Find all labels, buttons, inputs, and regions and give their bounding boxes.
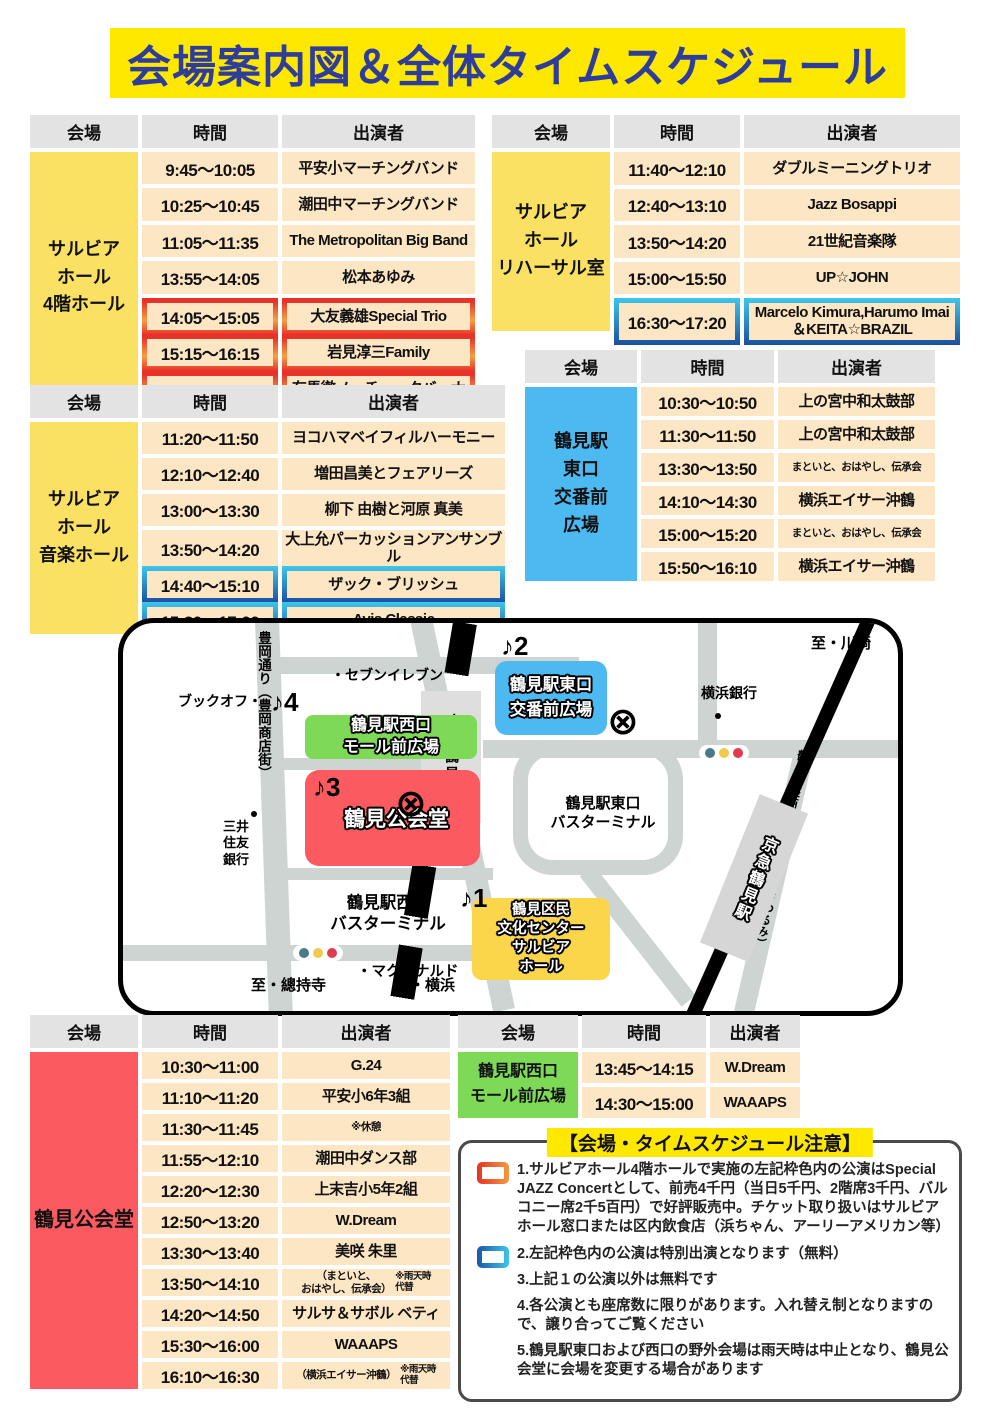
- crossing-icon-east: ⊗: [607, 703, 639, 741]
- table-row: 14:30～15:00 WAAAPS: [582, 1087, 800, 1118]
- table-row: 11:05～11:35 The Metropolitan Big Band: [142, 225, 475, 257]
- page-title: 会場案内図＆全体タイムスケジュール: [127, 31, 888, 95]
- col-header-venue: 会場: [30, 1015, 138, 1048]
- performer-cell: 平安小6年3組: [282, 1083, 450, 1110]
- table-rows: 10:30～11:00 G.24 11:10～11:20 平安小6年3組 11:…: [142, 1052, 450, 1389]
- table-row: 11:20～11:50 ヨコハマベイフィルハーモニー: [142, 422, 505, 454]
- time-cell: 11:30～11:45: [142, 1114, 278, 1141]
- table-row: 11:55～12:10 潮田中ダンス部: [142, 1145, 450, 1172]
- venue-map: 鶴見銀座商店街（ベルロードつるみ） ＪＲ鶴見駅 京急鶴見駅 豊岡通り（豊岡商店街…: [118, 618, 903, 1016]
- performer-cell: （まといと、 おはやし、伝承会）※雨天時 代替: [282, 1269, 450, 1296]
- schedule-table-east-plaza: 会場 時間 出演者 鶴見駅 東口 交番前 広場 10:30～10:50 上の宮中…: [525, 350, 935, 581]
- col-header-time: 時間: [142, 1015, 278, 1048]
- venue-name: 鶴見駅西口 モール前広場: [458, 1052, 578, 1118]
- performer-cell: まといと、おはやし、伝承会: [778, 519, 935, 548]
- time-cell: 13:50～14:20: [142, 530, 278, 567]
- col-header-performer: 出演者: [710, 1015, 800, 1048]
- table-row: 10:30～10:50 上の宮中和太鼓部: [641, 387, 935, 416]
- time-cell: 11:55～12:10: [142, 1145, 278, 1172]
- time-cell: 12:50～13:20: [142, 1207, 278, 1234]
- col-header-performer: 出演者: [282, 1015, 450, 1048]
- note-item: 5.鶴見駅東口および西口の野外会場は雨天時は中止となり、鶴見公会堂に会場を変更す…: [467, 1342, 949, 1380]
- color-swatch-icon: [477, 1162, 509, 1184]
- performer-cell: Jazz Bosappi: [744, 189, 960, 222]
- schedule-table-music-hall: 会場 時間 出演者 サルビア ホール 音楽ホール 11:20～11:50 ヨコハ…: [30, 385, 505, 634]
- table-row: 16:10～16:30 （横浜エイサー沖鶴）※雨天時 代替: [142, 1362, 450, 1389]
- time-cell: 10:30～10:50: [641, 387, 774, 416]
- table-row: 15:50～16:10 横浜エイサー沖鶴: [641, 552, 935, 581]
- time-cell: 14:40～15:10: [142, 566, 278, 603]
- road-right-vertical: [698, 619, 717, 745]
- table-row: 15:30～16:00 WAAAPS: [142, 1331, 450, 1358]
- table-row: 12:40～13:10 Jazz Bosappi: [614, 189, 960, 222]
- direction-sojiji: 至・總持寺: [251, 977, 326, 996]
- time-cell: 14:05～15:05: [142, 298, 278, 335]
- schedule-table-salvia-4f: 会場 時間 出演者 サルビア ホール 4階ホール 9:45～10:05 平安小マ…: [30, 115, 475, 403]
- time-cell: 13:30～13:40: [142, 1238, 278, 1265]
- table-row: 15:00～15:20 まといと、おはやし、伝承会: [641, 519, 935, 548]
- performer-cell: 美咲 朱里: [282, 1238, 450, 1265]
- col-header-time: 時間: [582, 1015, 706, 1048]
- poi-seven-eleven: ・セブンイレブン: [331, 667, 443, 685]
- time-cell: 11:05～11:35: [142, 225, 278, 257]
- time-cell: 11:40～12:10: [614, 152, 740, 185]
- table-row: 11:40～12:10 ダブルミーニングトリオ: [614, 152, 960, 185]
- road-west-2: [275, 868, 493, 880]
- col-header-time: 時間: [641, 350, 774, 383]
- west-bus-terminal-label: 鶴見駅西口 バスターミナル: [288, 893, 488, 934]
- time-cell: 16:30～17:20: [614, 298, 740, 345]
- table-row: 13:50～14:10 （まといと、 おはやし、伝承会）※雨天時 代替: [142, 1269, 450, 1296]
- table-row: 12:50～13:20 W.Dream: [142, 1207, 450, 1234]
- time-cell: 13:50～14:20: [614, 225, 740, 258]
- time-cell: 13:00～13:30: [142, 494, 278, 526]
- table-header: 会場 時間 出演者: [30, 385, 505, 418]
- table-header: 会場 時間 出演者: [30, 1015, 450, 1048]
- performer-cell: 大上允パーカッションアンサンブル: [282, 530, 505, 567]
- notes-panel: 【会場・タイムスケジュール注意】 1.サルビアホール4階ホールで実施の左記枠色内…: [458, 1140, 962, 1402]
- performer-cell: 上の宮中和太鼓部: [778, 387, 935, 416]
- performer-cell: 平安小マーチングバンド: [282, 152, 475, 184]
- performer-cell: 潮田中マーチングバンド: [282, 188, 475, 220]
- time-cell: 11:30～11:50: [641, 420, 774, 449]
- table-row: 13:55～14:05 松本あゆみ: [142, 261, 475, 293]
- poi-bank-dot: [715, 713, 721, 719]
- performer-cell: UP☆JOHN: [744, 262, 960, 295]
- table-rows: 10:30～10:50 上の宮中和太鼓部 11:30～11:50 上の宮中和太鼓…: [641, 387, 935, 581]
- performer-cell: （横浜エイサー沖鶴）※雨天時 代替: [282, 1362, 450, 1389]
- table-header: 会場 時間 出演者: [458, 1015, 800, 1048]
- note-text: 1.サルビアホール4階ホールで実施の左記枠色内の公演はSpecial JAZZ …: [517, 1161, 949, 1238]
- time-cell: 15:15～16:15: [142, 334, 278, 371]
- table-row: 12:20～12:30 上末吉小5年2組: [142, 1176, 450, 1203]
- col-header-performer: 出演者: [778, 350, 935, 383]
- note-item: 1.サルビアホール4階ホールで実施の左記枠色内の公演はSpecial JAZZ …: [467, 1161, 949, 1238]
- performer-cell: ダブルミーニングトリオ: [744, 152, 960, 185]
- time-cell: 12:10～12:40: [142, 458, 278, 490]
- performer-cell: ヨコハマベイフィルハーモニー: [282, 422, 505, 454]
- table-rows: 11:40～12:10 ダブルミーニングトリオ 12:40～13:10 Jazz…: [614, 152, 960, 331]
- time-cell: 13:55～14:05: [142, 261, 278, 293]
- east-bus-terminal-label: 鶴見駅東口 バスターミナル: [528, 795, 678, 833]
- table-row: 12:10～12:40 増田昌美とフェアリーズ: [142, 458, 505, 490]
- time-cell: 15:50～16:10: [641, 552, 774, 581]
- table-rows: 9:45～10:05 平安小マーチングバンド 10:25～10:45 潮田中マー…: [142, 152, 475, 403]
- performer-cell: 横浜エイサー沖鶴: [778, 552, 935, 581]
- marker-2-icon: ♪2: [501, 631, 528, 662]
- table-row: 16:30～17:20 Marcelo Kimura,Harumo Imai ＆…: [614, 298, 960, 331]
- col-header-venue: 会場: [525, 350, 637, 383]
- performer-cell: 大友義雄Special Trio: [282, 298, 475, 335]
- performer-cell: 柳下 由樹と河原 真美: [282, 494, 505, 526]
- performer-cell: サルサ＆サボル ベティ: [282, 1300, 450, 1327]
- table-rows: 11:20～11:50 ヨコハマベイフィルハーモニー 12:10～12:40 増…: [142, 422, 505, 634]
- performer-cell: 上末吉小5年2組: [282, 1176, 450, 1203]
- note-item: 2.左記枠色内の公演は特別出演となります（無料）: [467, 1245, 949, 1264]
- performer-cell: ザック・ブリッシュ: [282, 566, 505, 603]
- note-item: 4.各公演とも座席数に限りがあります。入れ替え制となりますので、譲り合ってご覧く…: [467, 1297, 949, 1335]
- table-row: 14:05～15:05 大友義雄Special Trio: [142, 298, 475, 330]
- col-header-venue: 会場: [458, 1015, 578, 1048]
- time-cell: 9:45～10:05: [142, 152, 278, 184]
- performer-cell: G.24: [282, 1052, 450, 1079]
- col-header-performer: 出演者: [282, 385, 505, 418]
- time-cell: 10:25～10:45: [142, 188, 278, 220]
- performer-cell: WAAAPS: [282, 1331, 450, 1358]
- table-header: 会場 時間 出演者: [492, 115, 960, 148]
- col-header-time: 時間: [142, 115, 278, 148]
- time-cell: 16:10～16:30: [142, 1362, 278, 1389]
- table-header: 会場 時間 出演者: [30, 115, 475, 148]
- color-swatch-icon: [477, 1246, 509, 1268]
- schedule-table-public-hall: 会場 時間 出演者 鶴見公会堂 10:30～11:00 G.24 11:10～1…: [30, 1015, 450, 1389]
- performer-cell: 増田昌美とフェアリーズ: [282, 458, 505, 490]
- map-venue-west-mall: 鶴見駅西口 モール前広場: [305, 715, 477, 759]
- table-row: 10:25～10:45 潮田中マーチングバンド: [142, 188, 475, 220]
- table-row: 13:50～14:20 大上允パーカッションアンサンブル: [142, 530, 505, 562]
- performer-cell: 岩見淳三Family: [282, 334, 475, 371]
- performer-cell: まといと、おはやし、伝承会: [778, 453, 935, 482]
- time-cell: 11:10～11:20: [142, 1083, 278, 1110]
- schedule-table-west-mall: 会場 時間 出演者 鶴見駅西口 モール前広場 13:45～14:15 W.Dre…: [458, 1015, 800, 1118]
- note-text: 3.上記１の公演以外は無料です: [517, 1271, 949, 1290]
- time-cell: 12:20～12:30: [142, 1176, 278, 1203]
- map-venue-east-plaza: 鶴見駅東口 交番前広場: [495, 661, 607, 735]
- col-header-time: 時間: [614, 115, 740, 148]
- table-row: 14:40～15:10 ザック・ブリッシュ: [142, 566, 505, 598]
- table-row: 13:50～14:20 21世紀音楽隊: [614, 225, 960, 258]
- table-row: 10:30～11:00 G.24: [142, 1052, 450, 1079]
- col-header-time: 時間: [142, 385, 278, 418]
- page-title-banner: 会場案内図＆全体タイムスケジュール: [110, 28, 905, 98]
- table-row: 11:30～11:50 上の宮中和太鼓部: [641, 420, 935, 449]
- time-cell: 10:30～11:00: [142, 1052, 278, 1079]
- note-item: 3.上記１の公演以外は無料です: [467, 1271, 949, 1290]
- direction-yokohama: 至・横浜: [395, 977, 455, 996]
- time-cell: 14:30～15:00: [582, 1087, 706, 1118]
- venue-name: サルビア ホール リハーサル室: [492, 152, 610, 331]
- col-header-venue: 会場: [30, 115, 138, 148]
- performer-cell: W.Dream: [282, 1207, 450, 1234]
- note-text: 2.左記枠色内の公演は特別出演となります（無料）: [517, 1245, 949, 1264]
- poi-mitsui-dot: [251, 811, 257, 817]
- traffic-light-icon-east: [699, 745, 749, 761]
- col-header-performer: 出演者: [282, 115, 475, 148]
- performer-cell: 上の宮中和太鼓部: [778, 420, 935, 449]
- time-cell: 12:40～13:10: [614, 189, 740, 222]
- table-row: 13:00～13:30 柳下 由樹と河原 真美: [142, 494, 505, 526]
- performer-cell: 松本あゆみ: [282, 261, 475, 293]
- poi-bookoff: ブックオフ・: [178, 693, 262, 711]
- direction-kawasaki: 至・川崎: [811, 635, 871, 654]
- table-row: 13:30～13:50 まといと、おはやし、伝承会: [641, 453, 935, 482]
- venue-name: サルビア ホール 音楽ホール: [30, 422, 138, 634]
- note-text: 5.鶴見駅東口および西口の野外会場は雨天時は中止となり、鶴見公会堂に会場を変更す…: [517, 1342, 949, 1380]
- time-cell: 15:00～15:50: [614, 262, 740, 295]
- time-cell: 14:10～14:30: [641, 486, 774, 515]
- table-row: 14:20～14:50 サルサ＆サボル ベティ: [142, 1300, 450, 1327]
- poi-mitsui-bank: 三井 住友 銀行: [223, 819, 249, 868]
- table-row: 15:00～15:50 UP☆JOHN: [614, 262, 960, 295]
- crossing-icon-west: ⊗: [395, 785, 427, 823]
- poi-yokohama-bank: 横浜銀行: [701, 685, 757, 703]
- road-west-1: [273, 758, 433, 770]
- time-cell: 15:00～15:20: [641, 519, 774, 548]
- col-header-venue: 会場: [30, 385, 138, 418]
- table-row: 13:30～13:40 美咲 朱里: [142, 1238, 450, 1265]
- table-header: 会場 時間 出演者: [525, 350, 935, 383]
- time-cell: 13:45～14:15: [582, 1052, 706, 1083]
- schedule-table-rehearsal: 会場 時間 出演者 サルビア ホール リハーサル室 11:40～12:10 ダブ…: [492, 115, 960, 331]
- marker-4-icon: ♪4: [271, 687, 298, 718]
- map-venue-salvia-hall: 鶴見区民 文化センター サルビア ホール: [472, 898, 610, 980]
- venue-name: サルビア ホール 4階ホール: [30, 152, 138, 403]
- performer-cell: The Metropolitan Big Band: [282, 225, 475, 257]
- table-row: 14:10～14:30 横浜エイサー沖鶴: [641, 486, 935, 515]
- time-cell: 11:20～11:50: [142, 422, 278, 454]
- col-header-performer: 出演者: [744, 115, 960, 148]
- notes-title: 【会場・タイムスケジュール注意】: [547, 1128, 873, 1157]
- marker-3-icon: ♪3: [313, 772, 340, 803]
- traffic-light-icon-west: [293, 945, 343, 961]
- map-venue-public-hall-box: ♪3 鶴見公会堂: [305, 770, 480, 866]
- table-row: 9:45～10:05 平安小マーチングバンド: [142, 152, 475, 184]
- marker-1-icon: ♪1: [460, 883, 487, 914]
- time-cell: 13:50～14:10: [142, 1269, 278, 1296]
- keikyu-tsurumi-station-building: 京急鶴見駅: [700, 794, 808, 962]
- performer-cell: ※休憩: [282, 1114, 450, 1141]
- performer-cell: W.Dream: [710, 1052, 800, 1083]
- performer-cell: 21世紀音楽隊: [744, 225, 960, 258]
- venue-name: 鶴見駅 東口 交番前 広場: [525, 387, 637, 581]
- table-row: 11:10～11:20 平安小6年3組: [142, 1083, 450, 1110]
- table-rows: 13:45～14:15 W.Dream 14:30～15:00 WAAAPS: [582, 1052, 800, 1118]
- performer-cell: WAAAPS: [710, 1087, 800, 1118]
- note-text: 4.各公演とも座席数に限りがあります。入れ替え制となりますので、譲り合ってご覧く…: [517, 1297, 949, 1335]
- performer-cell: Marcelo Kimura,Harumo Imai ＆KEITA☆BRAZIL: [744, 298, 960, 345]
- table-row: 13:45～14:15 W.Dream: [582, 1052, 800, 1083]
- venue-name: 鶴見公会堂: [30, 1052, 138, 1389]
- notes-body: 1.サルビアホール4階ホールで実施の左記枠色内の公演はSpecial JAZZ …: [461, 1143, 959, 1393]
- performer-cell: 横浜エイサー沖鶴: [778, 486, 935, 515]
- table-row: 15:15～16:15 岩見淳三Family: [142, 334, 475, 366]
- performer-cell: 潮田中ダンス部: [282, 1145, 450, 1172]
- col-header-venue: 会場: [492, 115, 610, 148]
- time-cell: 15:30～16:00: [142, 1331, 278, 1358]
- time-cell: 14:20～14:50: [142, 1300, 278, 1327]
- time-cell: 13:30～13:50: [641, 453, 774, 482]
- table-row: 11:30～11:45 ※休憩: [142, 1114, 450, 1141]
